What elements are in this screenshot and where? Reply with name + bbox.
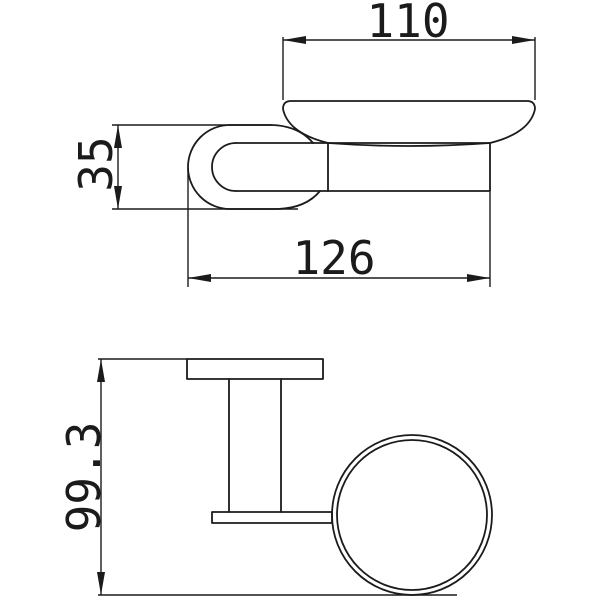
dim-mount-width-label: 35 [69,136,123,191]
side-view: 99.3 [57,359,492,595]
dim-mount-width: 35 [69,125,298,209]
wall-plate [187,359,323,379]
mount-loop-inner-outline [212,143,236,191]
dim-dish-width-label: 110 [366,0,449,48]
soap-dish-profile [283,101,535,146]
dim-overall-height: 99.3 [57,359,457,595]
dim-dish-width-arrowhead-left [283,36,306,44]
drawing-svg: 110 35 126 [0,0,600,600]
dim-overall-depth-arrowhead-left [188,274,211,282]
dim-dish-width-arrowhead-right [512,36,535,44]
dim-overall-height-label: 99.3 [57,422,111,533]
mount-loop-outer-outline [188,125,320,209]
technical-drawing-canvas: 110 35 126 [0,0,600,600]
dim-overall-depth-arrowhead-right [467,274,490,282]
dim-overall-height-arrowhead-up [97,359,105,382]
dim-overall-depth-label: 126 [292,231,375,285]
dim-overall-height-arrowhead-down [97,572,105,595]
top-view: 110 35 126 [69,0,535,287]
dim-overall-depth: 126 [188,168,490,287]
holder-ring-outer [332,435,492,595]
holder-ring-inner [337,440,487,590]
support-arm [212,512,332,523]
dim-dish-width: 110 [283,0,535,100]
